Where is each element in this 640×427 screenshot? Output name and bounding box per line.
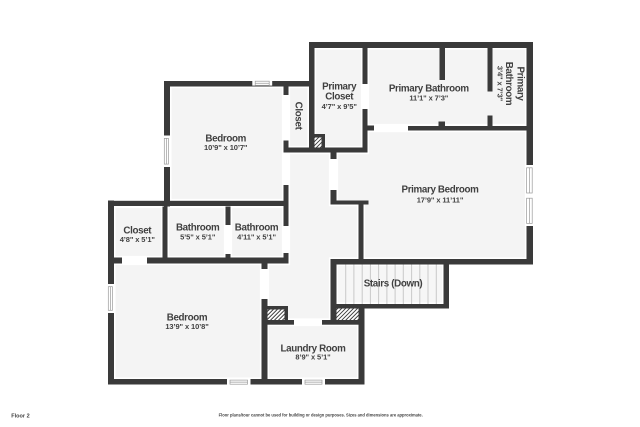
svg-text:Primary: Primary: [515, 66, 526, 101]
svg-text:4’7" x 9’5": 4’7" x 9’5": [322, 102, 358, 111]
svg-text:Primary Bedroom: Primary Bedroom: [402, 185, 480, 196]
svg-text:10’9" x 10’7": 10’9" x 10’7": [204, 143, 248, 152]
svg-text:Closet: Closet: [292, 102, 303, 131]
svg-text:Floor 2: Floor 2: [11, 414, 29, 420]
svg-text:13’9" x 10’8": 13’9" x 10’8": [165, 322, 209, 331]
svg-text:11’1" x 7’3": 11’1" x 7’3": [409, 93, 448, 102]
svg-text:4’11" x 5’1": 4’11" x 5’1": [237, 233, 276, 242]
svg-text:5’5" x 5’1": 5’5" x 5’1": [180, 233, 216, 242]
svg-text:8’9" x 5’1": 8’9" x 5’1": [295, 352, 331, 361]
svg-text:3’4" x 7’3": 3’4" x 7’3": [496, 66, 505, 102]
svg-text:4’8" x 5’1": 4’8" x 5’1": [120, 235, 156, 244]
svg-text:17’9" x 11’11": 17’9" x 11’11": [417, 196, 464, 205]
svg-text:Floor plans/tour cannot be use: Floor plans/tour cannot be used for buil…: [219, 413, 423, 418]
svg-text:Stairs (Down): Stairs (Down): [364, 279, 423, 290]
